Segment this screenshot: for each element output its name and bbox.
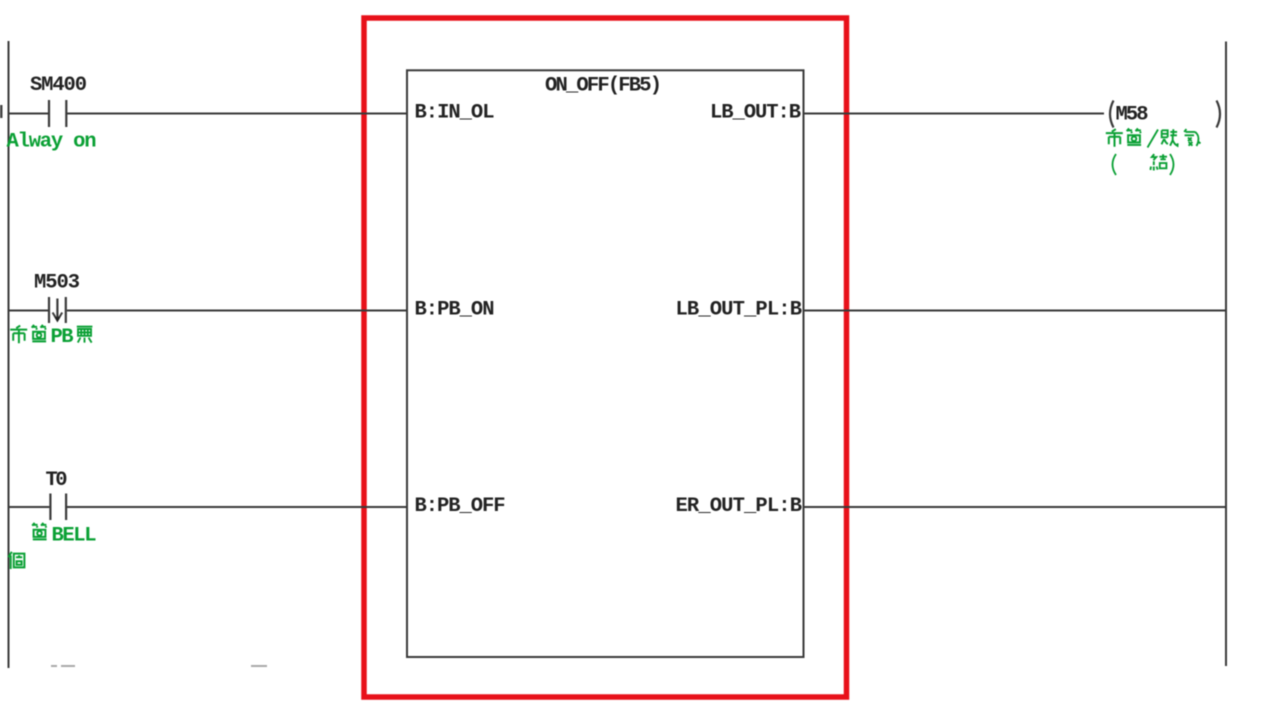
svg-text:ON_OFF(FB5): ON_OFF(FB5): [545, 75, 662, 98]
svg-text:Alway on: Alway on: [7, 131, 97, 154]
svg-text:LB_OUT_PL:B: LB_OUT_PL:B: [676, 299, 803, 322]
svg-text:T0: T0: [46, 469, 68, 492]
svg-text:M503: M503: [34, 272, 80, 295]
svg-text:PB: PB: [51, 326, 74, 349]
svg-text:BELL: BELL: [52, 525, 97, 548]
svg-text:B:IN_OL: B:IN_OL: [415, 102, 495, 125]
svg-text:B:PB_OFF: B:PB_OFF: [415, 495, 506, 518]
svg-text:LB_OUT:B: LB_OUT:B: [710, 102, 801, 125]
svg-text:SM400: SM400: [30, 74, 87, 97]
svg-text:B:PB_ON: B:PB_ON: [415, 299, 495, 322]
svg-text:ER_OUT_PL:B: ER_OUT_PL:B: [676, 495, 803, 518]
svg-text:M58: M58: [1116, 104, 1149, 127]
